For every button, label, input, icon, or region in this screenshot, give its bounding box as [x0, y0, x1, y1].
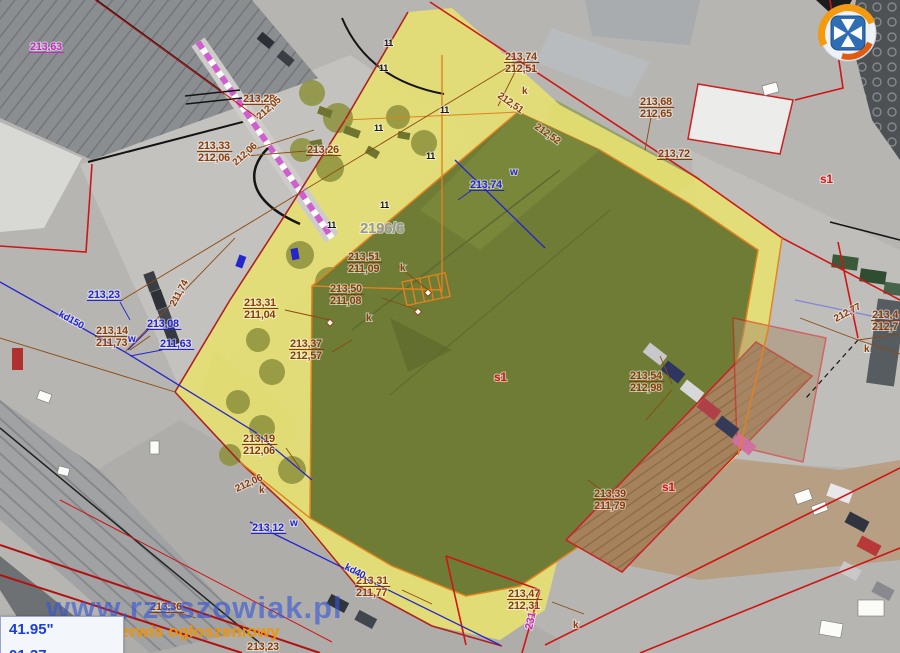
map-label: 11 — [440, 105, 449, 115]
map-label: 213,08 — [146, 318, 181, 330]
svg-text:s1: s1 — [494, 370, 507, 384]
svg-text:k: k — [573, 620, 579, 631]
svg-text:211,79: 211,79 — [594, 500, 625, 512]
svg-text:213,19: 213,19 — [243, 433, 275, 445]
svg-text:213,31: 213,31 — [244, 297, 276, 309]
svg-text:213,72: 213,72 — [658, 148, 690, 160]
svg-text:s1: s1 — [820, 172, 833, 186]
map-label: s1 — [820, 172, 833, 186]
svg-text:k: k — [366, 313, 372, 324]
map-label: 11 — [384, 38, 393, 48]
svg-text:11: 11 — [440, 105, 449, 115]
svg-text:k: k — [522, 86, 528, 97]
map-label: 213,23 — [87, 289, 122, 301]
svg-text:213,26: 213,26 — [307, 144, 339, 156]
svg-text:213,23: 213,23 — [88, 289, 120, 301]
svg-text:213,23: 213,23 — [247, 641, 279, 653]
map-label: 11 — [426, 151, 435, 161]
map-label: 213,12 — [251, 522, 286, 534]
aerial-map-canvas: 213,74212,51213,68212,65213,51211,09213,… — [0, 0, 900, 653]
map-label: 11 — [379, 63, 388, 73]
map-label: 213,4212,7 — [871, 309, 900, 333]
svg-text:212,65: 212,65 — [640, 108, 672, 120]
svg-text:213,74: 213,74 — [505, 51, 538, 63]
svg-text:211,73: 211,73 — [96, 337, 127, 349]
map-label: 213,39211,79 — [593, 488, 628, 512]
svg-text:k: k — [259, 485, 265, 496]
map-label: 11 — [380, 200, 389, 210]
map-label: 213,19212,06 — [242, 433, 277, 457]
svg-text:213,4: 213,4 — [872, 309, 899, 321]
map-label: 213,74 — [469, 179, 504, 191]
map-label: 213,50211,08 — [329, 283, 364, 307]
map-label: 11 — [327, 220, 336, 230]
svg-text:w: w — [289, 518, 298, 529]
map-label: 213,26 — [306, 144, 341, 156]
svg-text:s1: s1 — [662, 480, 675, 494]
svg-text:213,37: 213,37 — [290, 338, 322, 350]
svg-text:11: 11 — [426, 151, 435, 161]
svg-text:212,57: 212,57 — [290, 350, 322, 362]
svg-text:2196/6: 2196/6 — [360, 220, 404, 237]
map-label: k — [864, 344, 870, 355]
svg-text:213,12: 213,12 — [252, 522, 284, 534]
map-label: s1 — [662, 480, 675, 494]
svg-text:213,47: 213,47 — [508, 588, 540, 600]
map-label: 11 — [374, 123, 383, 133]
svg-text:212,98: 212,98 — [630, 382, 662, 394]
svg-text:213,63: 213,63 — [30, 41, 62, 53]
map-label: k — [259, 485, 265, 496]
map-label: 213,37212,57 — [289, 338, 324, 362]
svg-text:11: 11 — [380, 200, 389, 210]
coordinate-line-2: 01.37 — [9, 647, 117, 653]
map-label: 213,23 — [247, 641, 279, 653]
svg-text:211,04: 211,04 — [244, 309, 276, 321]
map-label: 213,63 — [29, 41, 64, 53]
map-label: 213,68212,65 — [639, 96, 674, 120]
map-label: k — [400, 263, 406, 274]
svg-text:213,39: 213,39 — [594, 488, 626, 500]
map-label: 213,31211,04 — [243, 297, 278, 321]
map-label: k — [522, 86, 528, 97]
svg-text:k: k — [864, 344, 870, 355]
map-label: 213,54212,98 — [629, 370, 664, 394]
map-label: 213,33212,06 — [197, 140, 232, 164]
svg-text:212,51: 212,51 — [505, 63, 537, 75]
svg-text:213,68: 213,68 — [640, 96, 672, 108]
map-label: w — [289, 518, 298, 529]
svg-text:213,14: 213,14 — [96, 325, 129, 337]
svg-text:213,54: 213,54 — [630, 370, 663, 382]
svg-text:11: 11 — [379, 63, 388, 73]
map-label: 2196/6 — [360, 220, 404, 237]
map-label: 211,63 — [159, 338, 194, 350]
map-label: 213,74212,51 — [504, 51, 539, 75]
svg-text:211,63: 211,63 — [160, 338, 191, 350]
svg-text:213,08: 213,08 — [147, 318, 179, 330]
map-label: k — [366, 313, 372, 324]
svg-text:213,33: 213,33 — [198, 140, 230, 152]
svg-text:213,51: 213,51 — [348, 251, 380, 263]
svg-text:211,77: 211,77 — [356, 587, 387, 599]
svg-text:212,06: 212,06 — [198, 152, 230, 164]
svg-text:211,08: 211,08 — [330, 295, 361, 307]
svg-text:211,09: 211,09 — [348, 263, 379, 275]
svg-text:11: 11 — [384, 38, 393, 48]
svg-text:212,7: 212,7 — [872, 321, 898, 333]
map-label: w — [127, 334, 136, 345]
svg-text:213,74: 213,74 — [470, 179, 503, 191]
map-label: 213,72 — [657, 148, 692, 160]
map-label: w — [509, 167, 518, 178]
rzeszow-crest-logo — [818, 3, 878, 63]
coordinate-line-1: 41.95" — [9, 621, 117, 638]
map-viewport[interactable]: 213,74212,51213,68212,65213,51211,09213,… — [0, 0, 900, 653]
map-label: s1 — [494, 370, 507, 384]
svg-text:212,06: 212,06 — [243, 445, 275, 457]
svg-text:k: k — [400, 263, 406, 274]
map-label: 213,14211,73 — [95, 325, 130, 349]
svg-text:213,50: 213,50 — [330, 283, 362, 295]
map-label: 213,47212,31 — [507, 588, 542, 612]
svg-text:11: 11 — [374, 123, 383, 133]
svg-text:212,31: 212,31 — [508, 600, 540, 612]
svg-text:11: 11 — [327, 220, 336, 230]
map-label: 213,51211,09 — [347, 251, 382, 275]
svg-text:w: w — [127, 334, 136, 345]
coordinate-readout: 41.95" 01.37 — [0, 616, 124, 653]
svg-text:w: w — [509, 167, 518, 178]
map-label: k — [573, 620, 579, 631]
